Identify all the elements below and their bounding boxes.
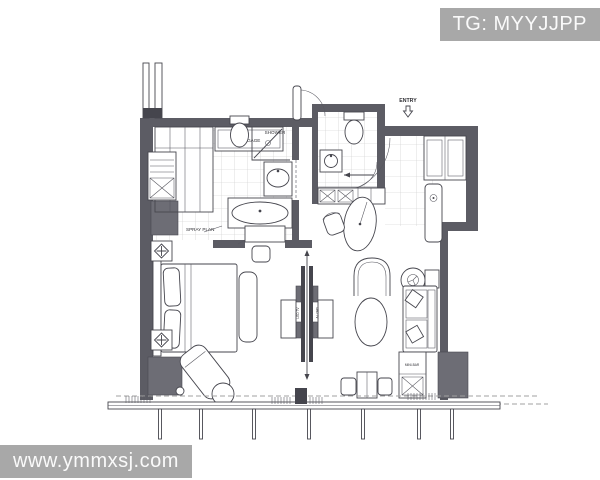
vanity (264, 162, 292, 196)
column-southeast (438, 352, 468, 398)
bed-bench (239, 272, 257, 342)
bath-south-wall-b (285, 240, 312, 248)
dressing-stool (252, 246, 270, 262)
tv-label-right: LED TV (315, 307, 319, 319)
minibar-cabinet: MINI-BAR (399, 352, 426, 398)
arrow-down-icon (305, 374, 310, 380)
tv-side-table-left (281, 300, 296, 338)
nightstand-north (151, 241, 172, 261)
tv-side-table-right (318, 300, 333, 338)
toilet (230, 116, 249, 147)
minibar-label: MINI-BAR (405, 363, 420, 367)
side-table (425, 270, 439, 288)
bath-east-wall-a (292, 127, 299, 160)
window-mullions (159, 409, 454, 439)
nightstand-south (151, 330, 172, 350)
game-table-set (341, 372, 392, 398)
window-wall (108, 388, 548, 439)
chair (378, 378, 392, 395)
powder-sink (320, 150, 342, 172)
watermark-url: www.ymmxsj.com (0, 445, 192, 478)
hall-wardrobe (318, 188, 385, 204)
chair (341, 378, 356, 395)
dressing-counter (245, 226, 285, 242)
entry-arrow-icon (404, 106, 413, 117)
entry-north-wall (384, 126, 478, 136)
watermark-tag: TG: MYYJJPP (440, 8, 600, 41)
east-step-wall (440, 222, 478, 231)
shower-label: SHOWER (265, 130, 286, 135)
spray-plan-label: SPRAY PLAN (186, 227, 214, 232)
powder-west-wall (312, 104, 318, 204)
floor-plan: LUGGAGE SHOWER SPR (0, 0, 600, 480)
desk-chair (322, 210, 346, 236)
small-knob (176, 387, 184, 395)
tv-label-left: LED TV (296, 307, 300, 319)
armchair (354, 258, 390, 296)
entry-tall-cabinet (425, 184, 442, 242)
screenshot-canvas: LUGGAGE SHOWER SPR (0, 0, 600, 480)
coffee-table (355, 298, 387, 346)
bathtub (228, 198, 292, 228)
east-wall-upper (466, 136, 478, 228)
sofa (403, 286, 437, 352)
shaft-cap (143, 108, 162, 118)
arrow-up-icon (305, 250, 310, 256)
powder-toilet (344, 112, 364, 144)
powder-east-wall (377, 104, 385, 188)
bath-south-wall-a (213, 240, 245, 248)
side-cabinet (148, 152, 176, 200)
tv-partition: LED TV LED TV (281, 250, 333, 380)
living-room: MINI-BAR (341, 258, 439, 398)
pivot-door-leaf (293, 86, 301, 120)
pillow (163, 268, 181, 307)
north-wall-bath (140, 118, 315, 127)
window-column (295, 388, 307, 404)
entry-label: ENTRY (399, 98, 417, 104)
